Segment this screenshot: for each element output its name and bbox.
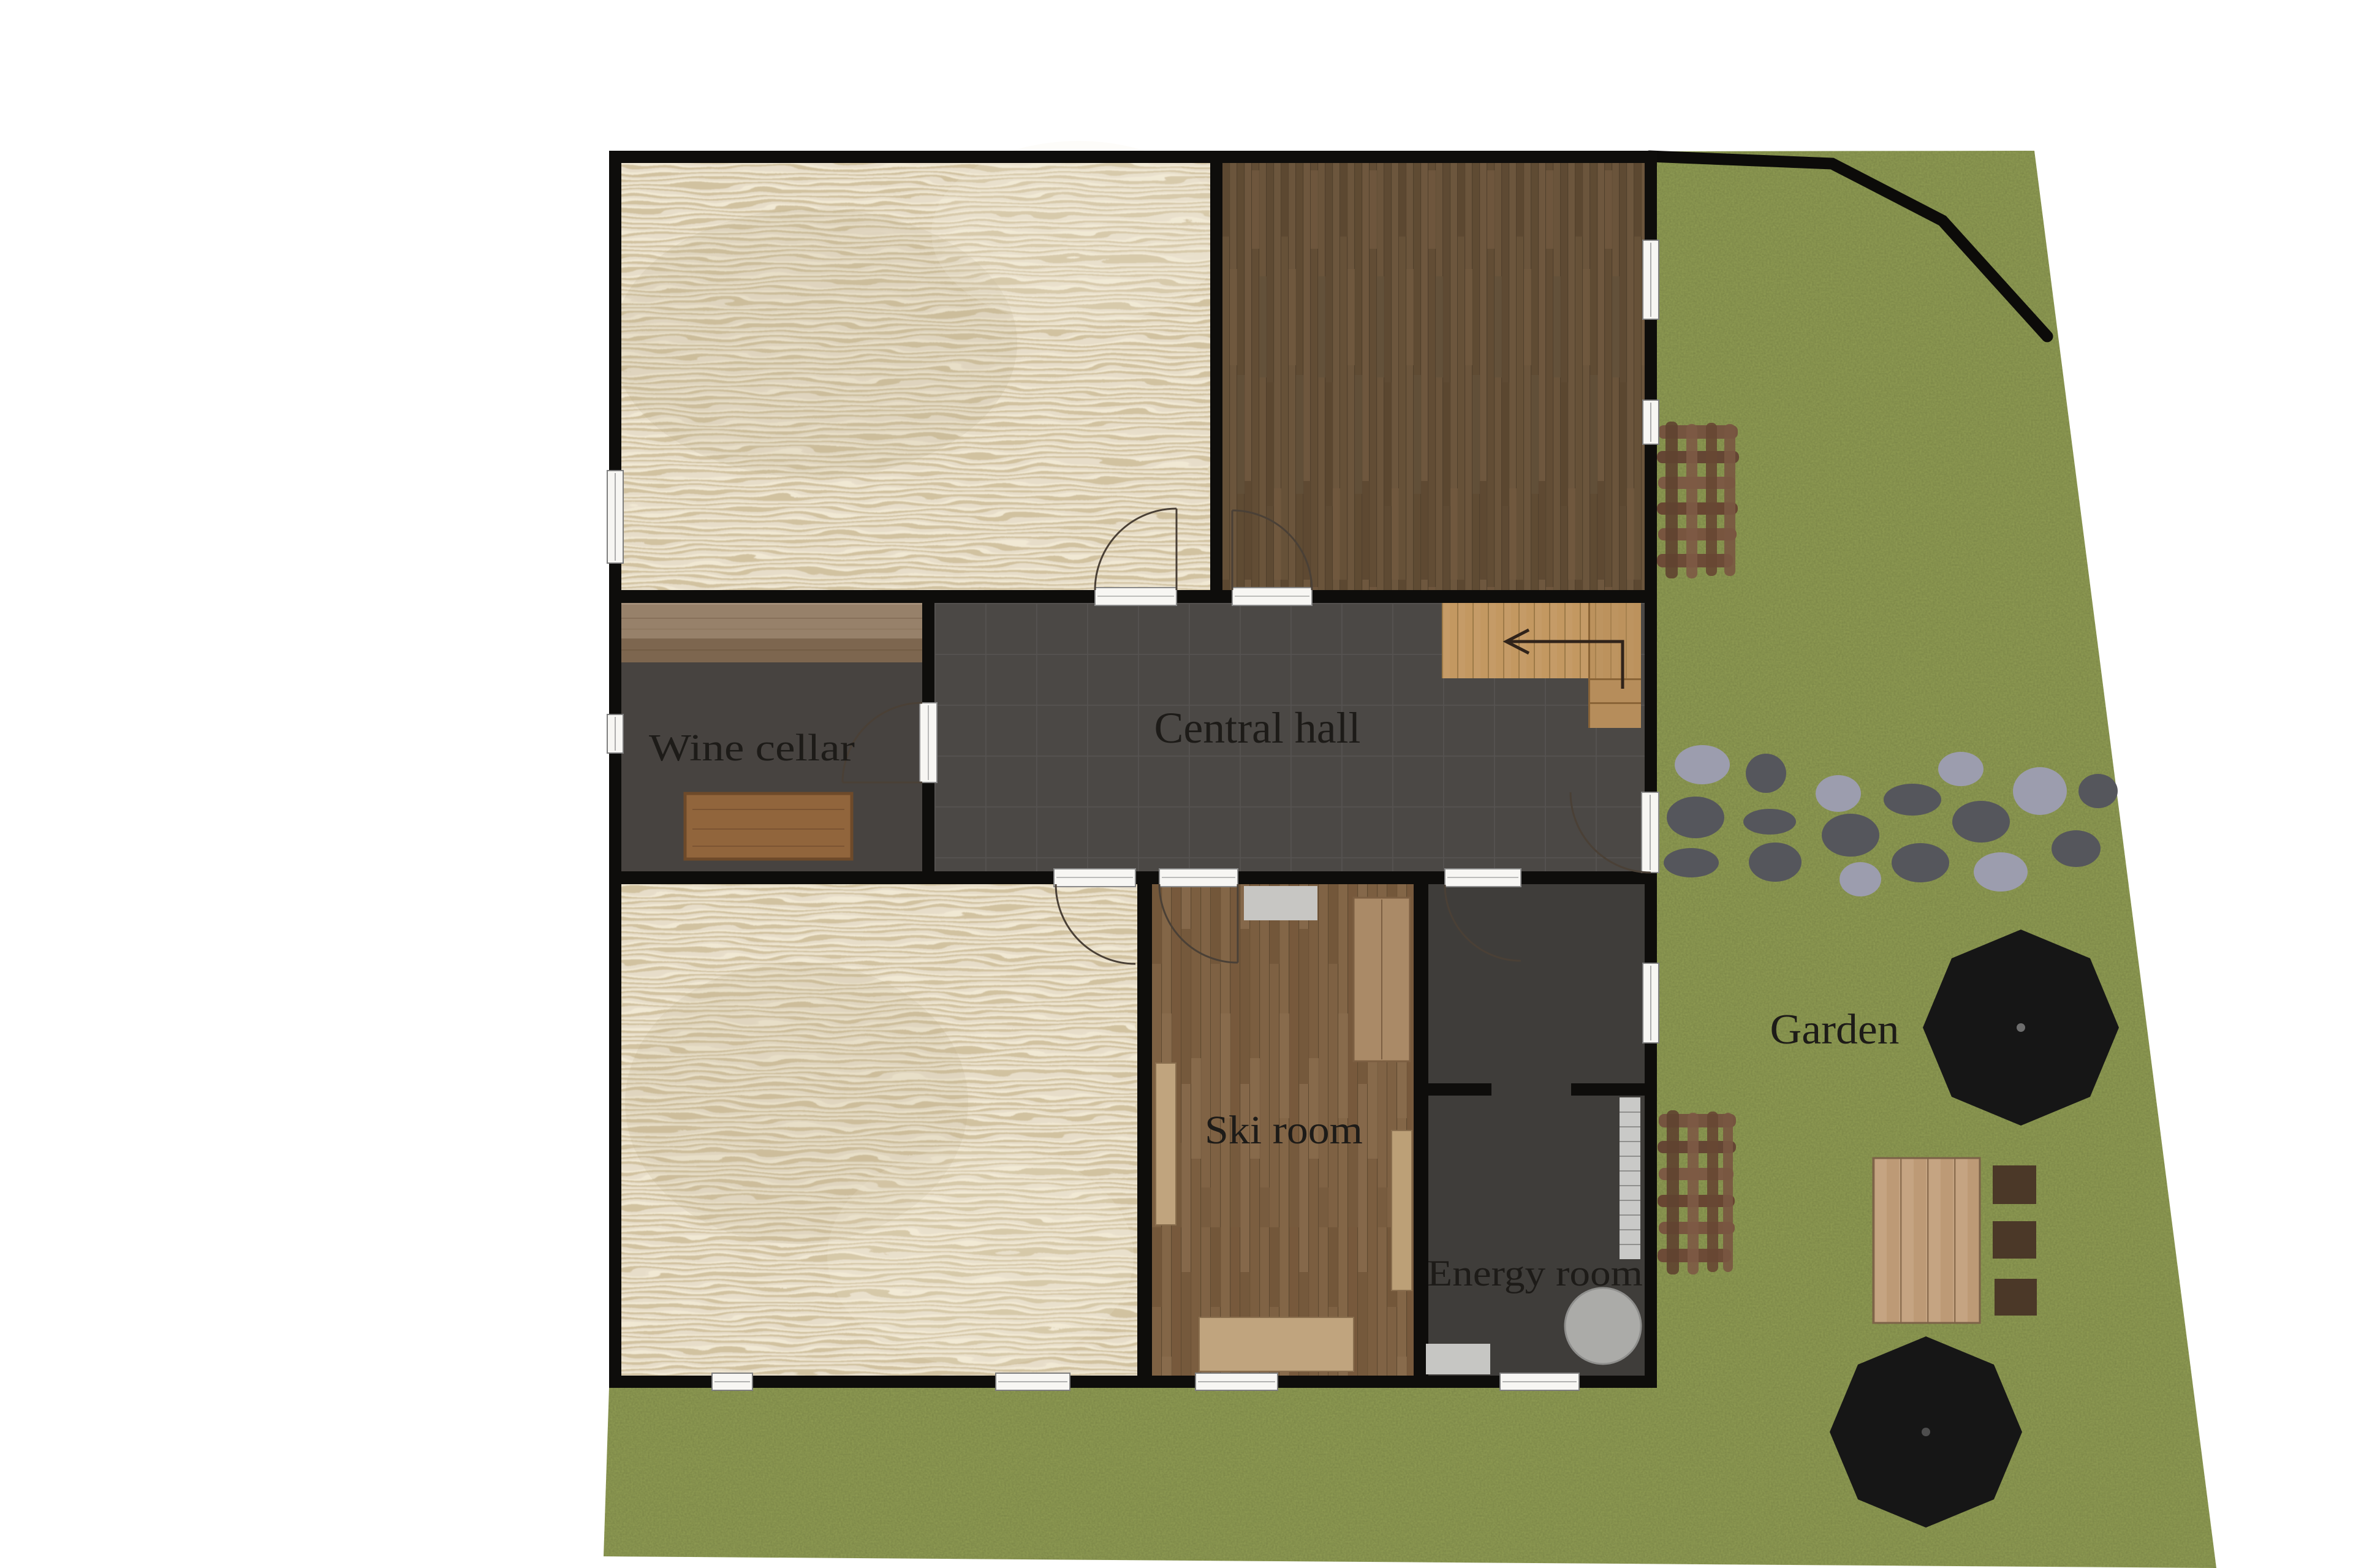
svg-text:Energy room: Energy room bbox=[1427, 1253, 1643, 1293]
svg-text:Wine cellar: Wine cellar bbox=[649, 727, 855, 769]
svg-text:Ski room: Ski room bbox=[1205, 1108, 1363, 1153]
svg-text:Central hall: Central hall bbox=[1154, 703, 1361, 752]
svg-text:Garden: Garden bbox=[1770, 1006, 1900, 1053]
